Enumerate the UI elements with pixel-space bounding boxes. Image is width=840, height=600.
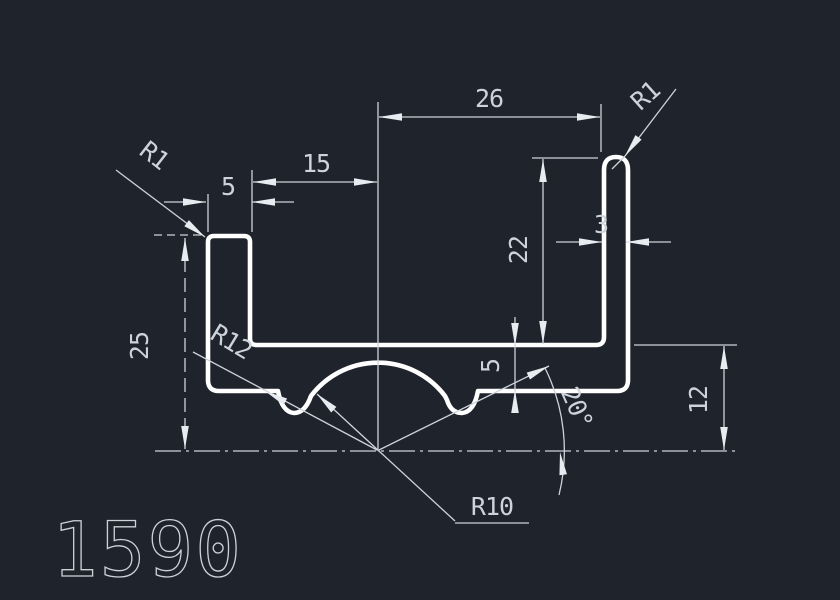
leader-r1-left: R1: [116, 135, 207, 240]
dim-text-3: 3: [594, 210, 608, 239]
dim-base-height: 12: [634, 345, 737, 450]
dim-text-12: 12: [684, 386, 713, 414]
dim-cavity-depth: 22: [504, 158, 598, 344]
dim-text-5-wall: 5: [221, 172, 235, 201]
dim-text-r1-left: R1: [134, 135, 174, 175]
dim-text-22: 22: [504, 236, 533, 264]
leader-r1-right: R1: [612, 76, 676, 169]
profile-number-text: 1590: [52, 505, 243, 594]
dim-left-opening: 15: [252, 149, 377, 232]
leader-r10: R10: [314, 391, 529, 523]
dim-text-15: 15: [302, 149, 330, 178]
cad-drawing-viewport: 26 15 5 R1 R1 3: [0, 0, 840, 600]
dim-text-r10: R10: [471, 492, 513, 521]
leader-r12: R12: [193, 318, 377, 450]
cad-drawing: 26 15 5 R1 R1 3: [0, 0, 840, 600]
dim-text-26: 26: [475, 84, 503, 113]
dim-right-wall: 3: [556, 210, 671, 246]
dim-overall-height: 25: [125, 235, 202, 449]
profile-outline: [208, 157, 628, 413]
dim-angle-20: 20°: [379, 363, 599, 495]
dim-top-width: 26: [379, 84, 601, 152]
dim-text-25: 25: [125, 332, 154, 360]
dim-text-5-base: 5: [476, 359, 505, 373]
